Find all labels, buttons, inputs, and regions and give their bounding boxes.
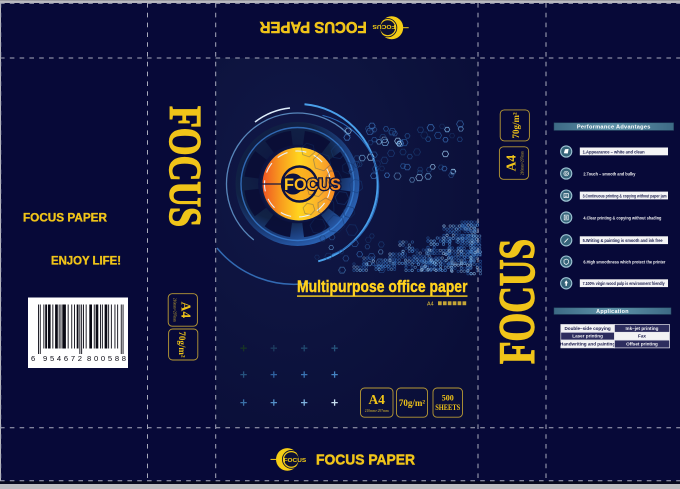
svg-text:70g/m²: 70g/m² [177,331,187,357]
svg-text:Offset printing: Offset printing [626,342,658,347]
svg-text:210mm×297mm: 210mm×297mm [172,298,176,322]
svg-text:1.Appearance – white and clean: 1.Appearance – white and clean [583,149,645,154]
svg-text:Double–side copying: Double–side copying [564,326,610,331]
svg-text:70g/m²: 70g/m² [399,398,425,408]
svg-text:Application: Application [596,309,629,315]
svg-text:FOCUS: FOCUS [284,458,307,464]
svg-text:SHEETS: SHEETS [435,403,460,412]
svg-text:FOCUS PAPER: FOCUS PAPER [23,211,107,225]
svg-text:500: 500 [442,394,454,403]
svg-text:A4: A4 [178,302,193,319]
svg-text:7.100% virgin wood pulp is env: 7.100% virgin wood pulp is environment f… [583,281,665,286]
svg-text:FOCUS: FOCUS [372,23,395,29]
svg-text:Ink–jet printing: Ink–jet printing [626,326,659,331]
svg-text:6.High smoothness which protec: 6.High smoothness which protect the prin… [583,259,665,264]
svg-text:Handwriting and painting: Handwriting and painting [560,342,615,347]
svg-text:A4: A4 [503,155,518,172]
svg-text:70g/m²: 70g/m² [511,112,521,138]
svg-text:A4: A4 [427,302,434,308]
svg-text:Fax: Fax [638,334,646,339]
svg-text:FOCUS: FOCUS [160,106,211,227]
svg-text:FOCUS PAPER: FOCUS PAPER [316,452,415,469]
svg-text:6: 6 [31,354,35,363]
svg-text:Performance Advantages: Performance Advantages [577,125,651,131]
svg-text:3.Continuous printing & copyin: 3.Continuous printing & copying without … [583,193,667,198]
svg-text:A4: A4 [368,392,385,407]
svg-text:4.Clear printing & copying wit: 4.Clear printing & copying without shadi… [583,215,661,220]
svg-text:210mm×297mm: 210mm×297mm [520,151,524,175]
svg-text:Multipurpose office paper: Multipurpose office paper [297,278,468,296]
svg-text:5.Writing & painting is smooth: 5.Writing & painting is smooth and ink f… [583,238,663,243]
svg-text:Laser printing: Laser printing [572,334,603,339]
svg-text:FOCUS PAPER: FOCUS PAPER [260,18,367,35]
svg-text:ENJOY LIFE!: ENJOY LIFE! [51,254,121,268]
svg-text:210mm×297mm: 210mm×297mm [365,409,389,413]
svg-text:2.Touch – smooth and bulky: 2.Touch – smooth and bulky [583,171,635,176]
svg-text:FOCUS: FOCUS [490,239,546,364]
